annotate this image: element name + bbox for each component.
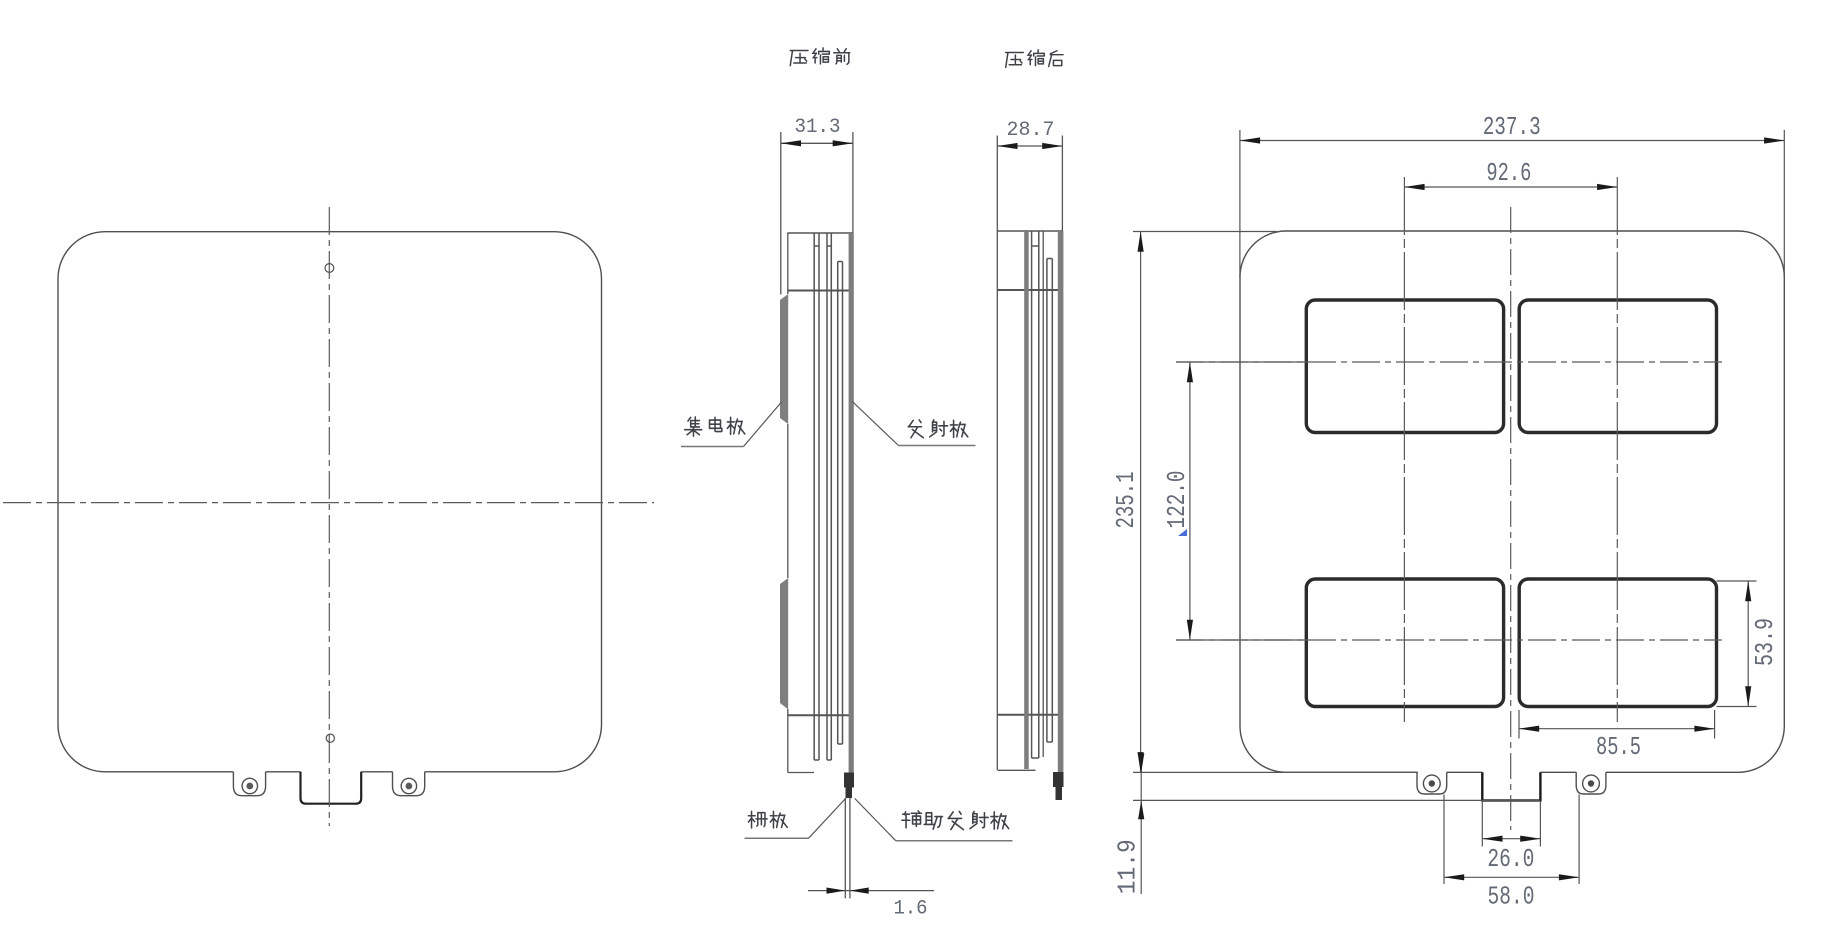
svg-text:1.6: 1.6 xyxy=(894,898,928,921)
svg-text:26.0: 26.0 xyxy=(1487,844,1534,874)
svg-text:58.0: 58.0 xyxy=(1488,882,1535,912)
svg-text:92.6: 92.6 xyxy=(1486,158,1531,188)
svg-text:122.0: 122.0 xyxy=(1162,471,1192,529)
svg-text:11.9: 11.9 xyxy=(1113,839,1143,894)
svg-text:28.7: 28.7 xyxy=(1007,119,1055,142)
svg-text:53.9: 53.9 xyxy=(1750,618,1780,666)
svg-text:235.1: 235.1 xyxy=(1111,472,1141,529)
svg-text:85.5: 85.5 xyxy=(1596,732,1641,762)
svg-text:31.3: 31.3 xyxy=(795,116,841,139)
svg-text:237.3: 237.3 xyxy=(1483,112,1541,142)
